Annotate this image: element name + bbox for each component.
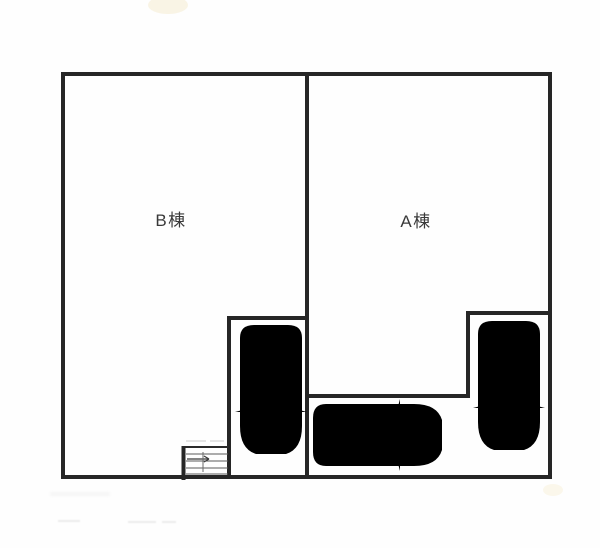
wall-building-a-bottom-right (466, 311, 548, 315)
staircase-icon (180, 438, 230, 480)
site-plan: B棟 A棟 (0, 0, 600, 548)
wall-parking-notch-top (227, 316, 309, 320)
scan-artifact (58, 520, 80, 522)
car-top-view-icon (472, 318, 546, 454)
wall-building-a-step (466, 311, 470, 398)
scan-artifact (50, 492, 110, 496)
building-a-label: A棟 (371, 207, 461, 232)
scan-artifact (162, 521, 176, 523)
scan-artifact (148, 0, 188, 14)
stair-direction-arrow-icon (187, 452, 209, 472)
car-top-view-icon (310, 398, 446, 472)
building-b-label: B棟 (126, 206, 216, 231)
scan-artifact (543, 484, 563, 496)
scan-artifact (128, 521, 156, 523)
car-top-view-icon (234, 322, 308, 458)
